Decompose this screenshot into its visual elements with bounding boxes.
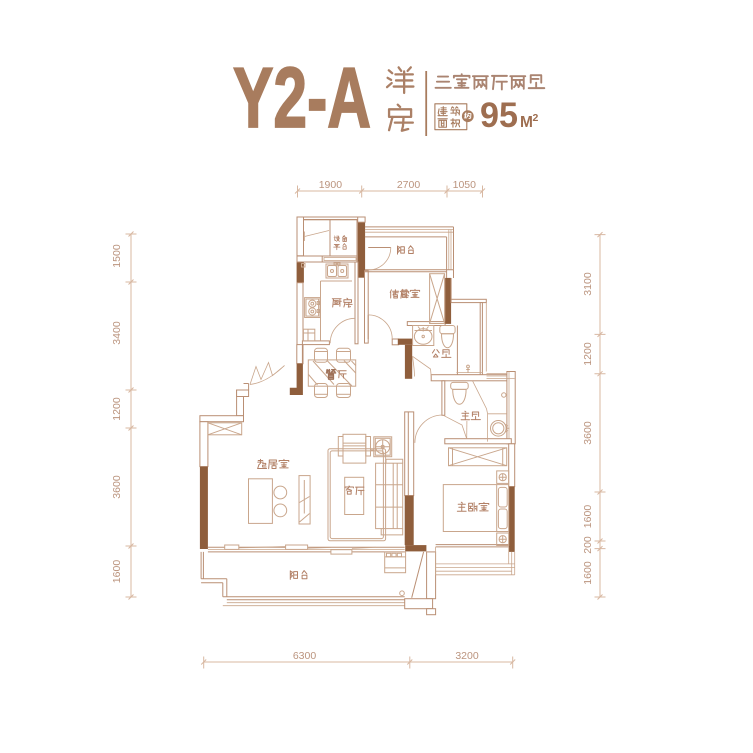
svg-text:Y2-A: Y2-A <box>233 51 371 146</box>
svg-text:1600: 1600 <box>582 561 594 585</box>
svg-text:1200: 1200 <box>582 342 594 366</box>
svg-text:1200: 1200 <box>111 397 123 421</box>
svg-text:6300: 6300 <box>293 650 317 662</box>
svg-text:3400: 3400 <box>111 321 123 345</box>
svg-text:1900: 1900 <box>319 179 343 191</box>
svg-text:1500: 1500 <box>111 244 123 268</box>
svg-text:3600: 3600 <box>111 475 123 499</box>
svg-text:3600: 3600 <box>582 421 594 445</box>
svg-text:2700: 2700 <box>397 179 421 191</box>
svg-text:2: 2 <box>533 112 539 124</box>
svg-text:3200: 3200 <box>455 650 479 662</box>
svg-text:3100: 3100 <box>582 272 594 296</box>
svg-text:1600: 1600 <box>111 560 123 584</box>
svg-text:95: 95 <box>480 96 518 135</box>
svg-text:1050: 1050 <box>453 179 477 191</box>
svg-text:M: M <box>520 114 533 131</box>
svg-text:1600: 1600 <box>582 505 594 529</box>
svg-text:200: 200 <box>582 536 594 554</box>
